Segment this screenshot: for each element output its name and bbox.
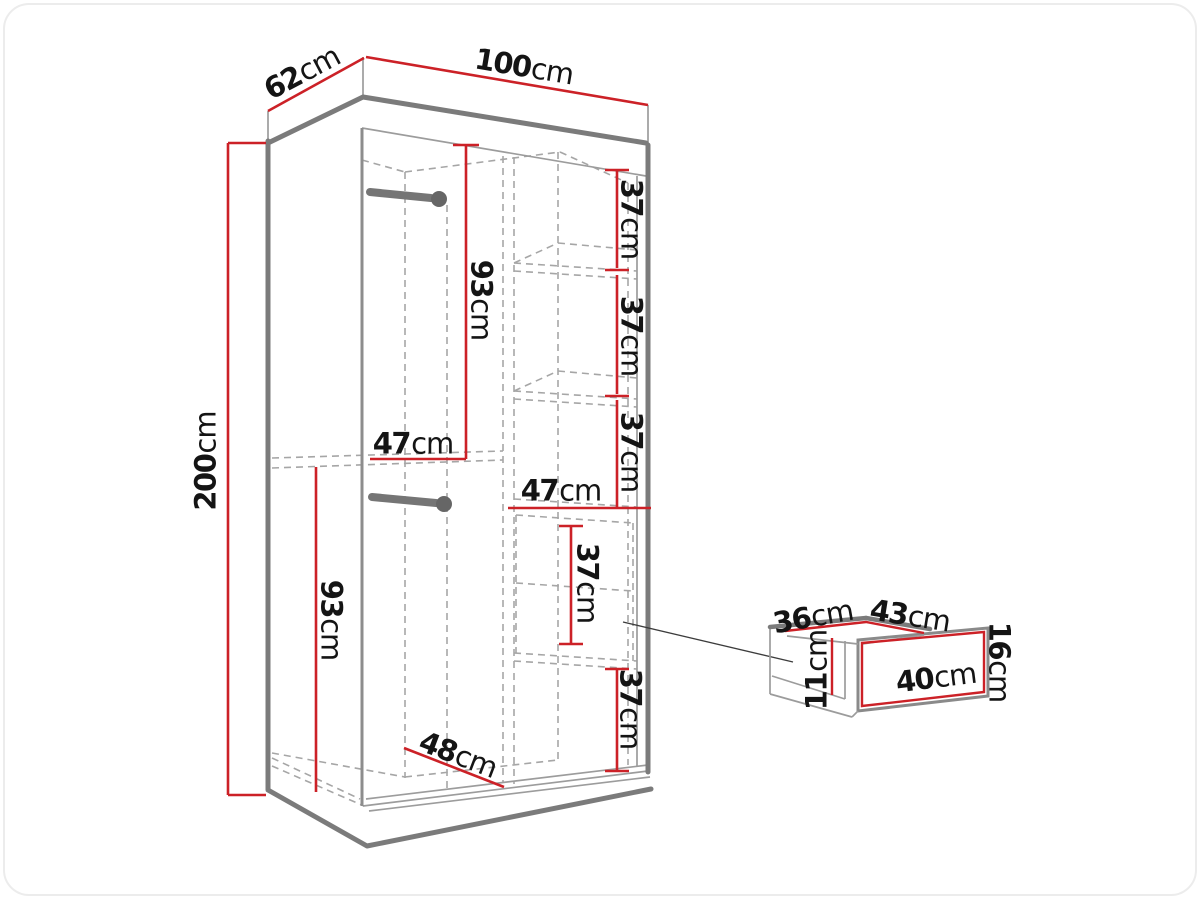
dim-label-shelf2-37cm: 37cm — [617, 296, 646, 377]
dim-label-height-200cm: 200cm — [192, 411, 221, 510]
diagram-canvas — [0, 0, 1200, 899]
dim-label-drawer-11cm: 11cm — [803, 630, 832, 711]
hanging-rail-bottom — [372, 496, 452, 512]
dim-label-drawer-16cm: 16cm — [985, 622, 1014, 703]
dim-label-drawer-bay-37cm: 37cm — [573, 543, 602, 624]
hanging-rail-top — [370, 191, 447, 207]
dim-label-bottom-37cm: 37cm — [616, 669, 645, 750]
dim-label-right-section-47cm: 47cm — [521, 477, 602, 506]
dim-label-hanging-top-93cm: 93cm — [467, 260, 496, 341]
dim-label-shelf3-37cm: 37cm — [617, 412, 646, 493]
dim-label-left-section-47cm: 47cm — [373, 430, 454, 459]
dim-label-hanging-bottom-93cm: 93cm — [317, 580, 346, 661]
wardrobe-thin-lines — [268, 57, 650, 811]
wardrobe-outline — [268, 97, 651, 846]
dim-label-shelf1-37cm: 37cm — [617, 179, 646, 260]
